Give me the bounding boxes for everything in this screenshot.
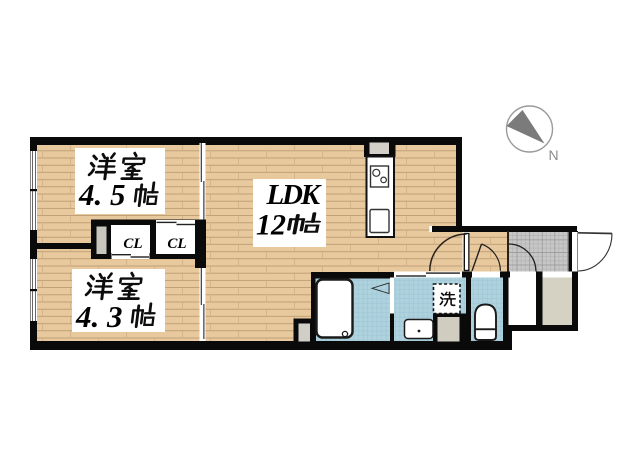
svg-text:4. 3: 4. 3 [75,299,123,334]
svg-text:CL: CL [123,236,142,252]
svg-text:12: 12 [256,209,286,242]
svg-text:LDK: LDK [266,179,322,211]
svg-text:N: N [549,147,559,163]
svg-text:CL: CL [167,236,186,252]
svg-text:4. 5: 4. 5 [78,177,126,212]
